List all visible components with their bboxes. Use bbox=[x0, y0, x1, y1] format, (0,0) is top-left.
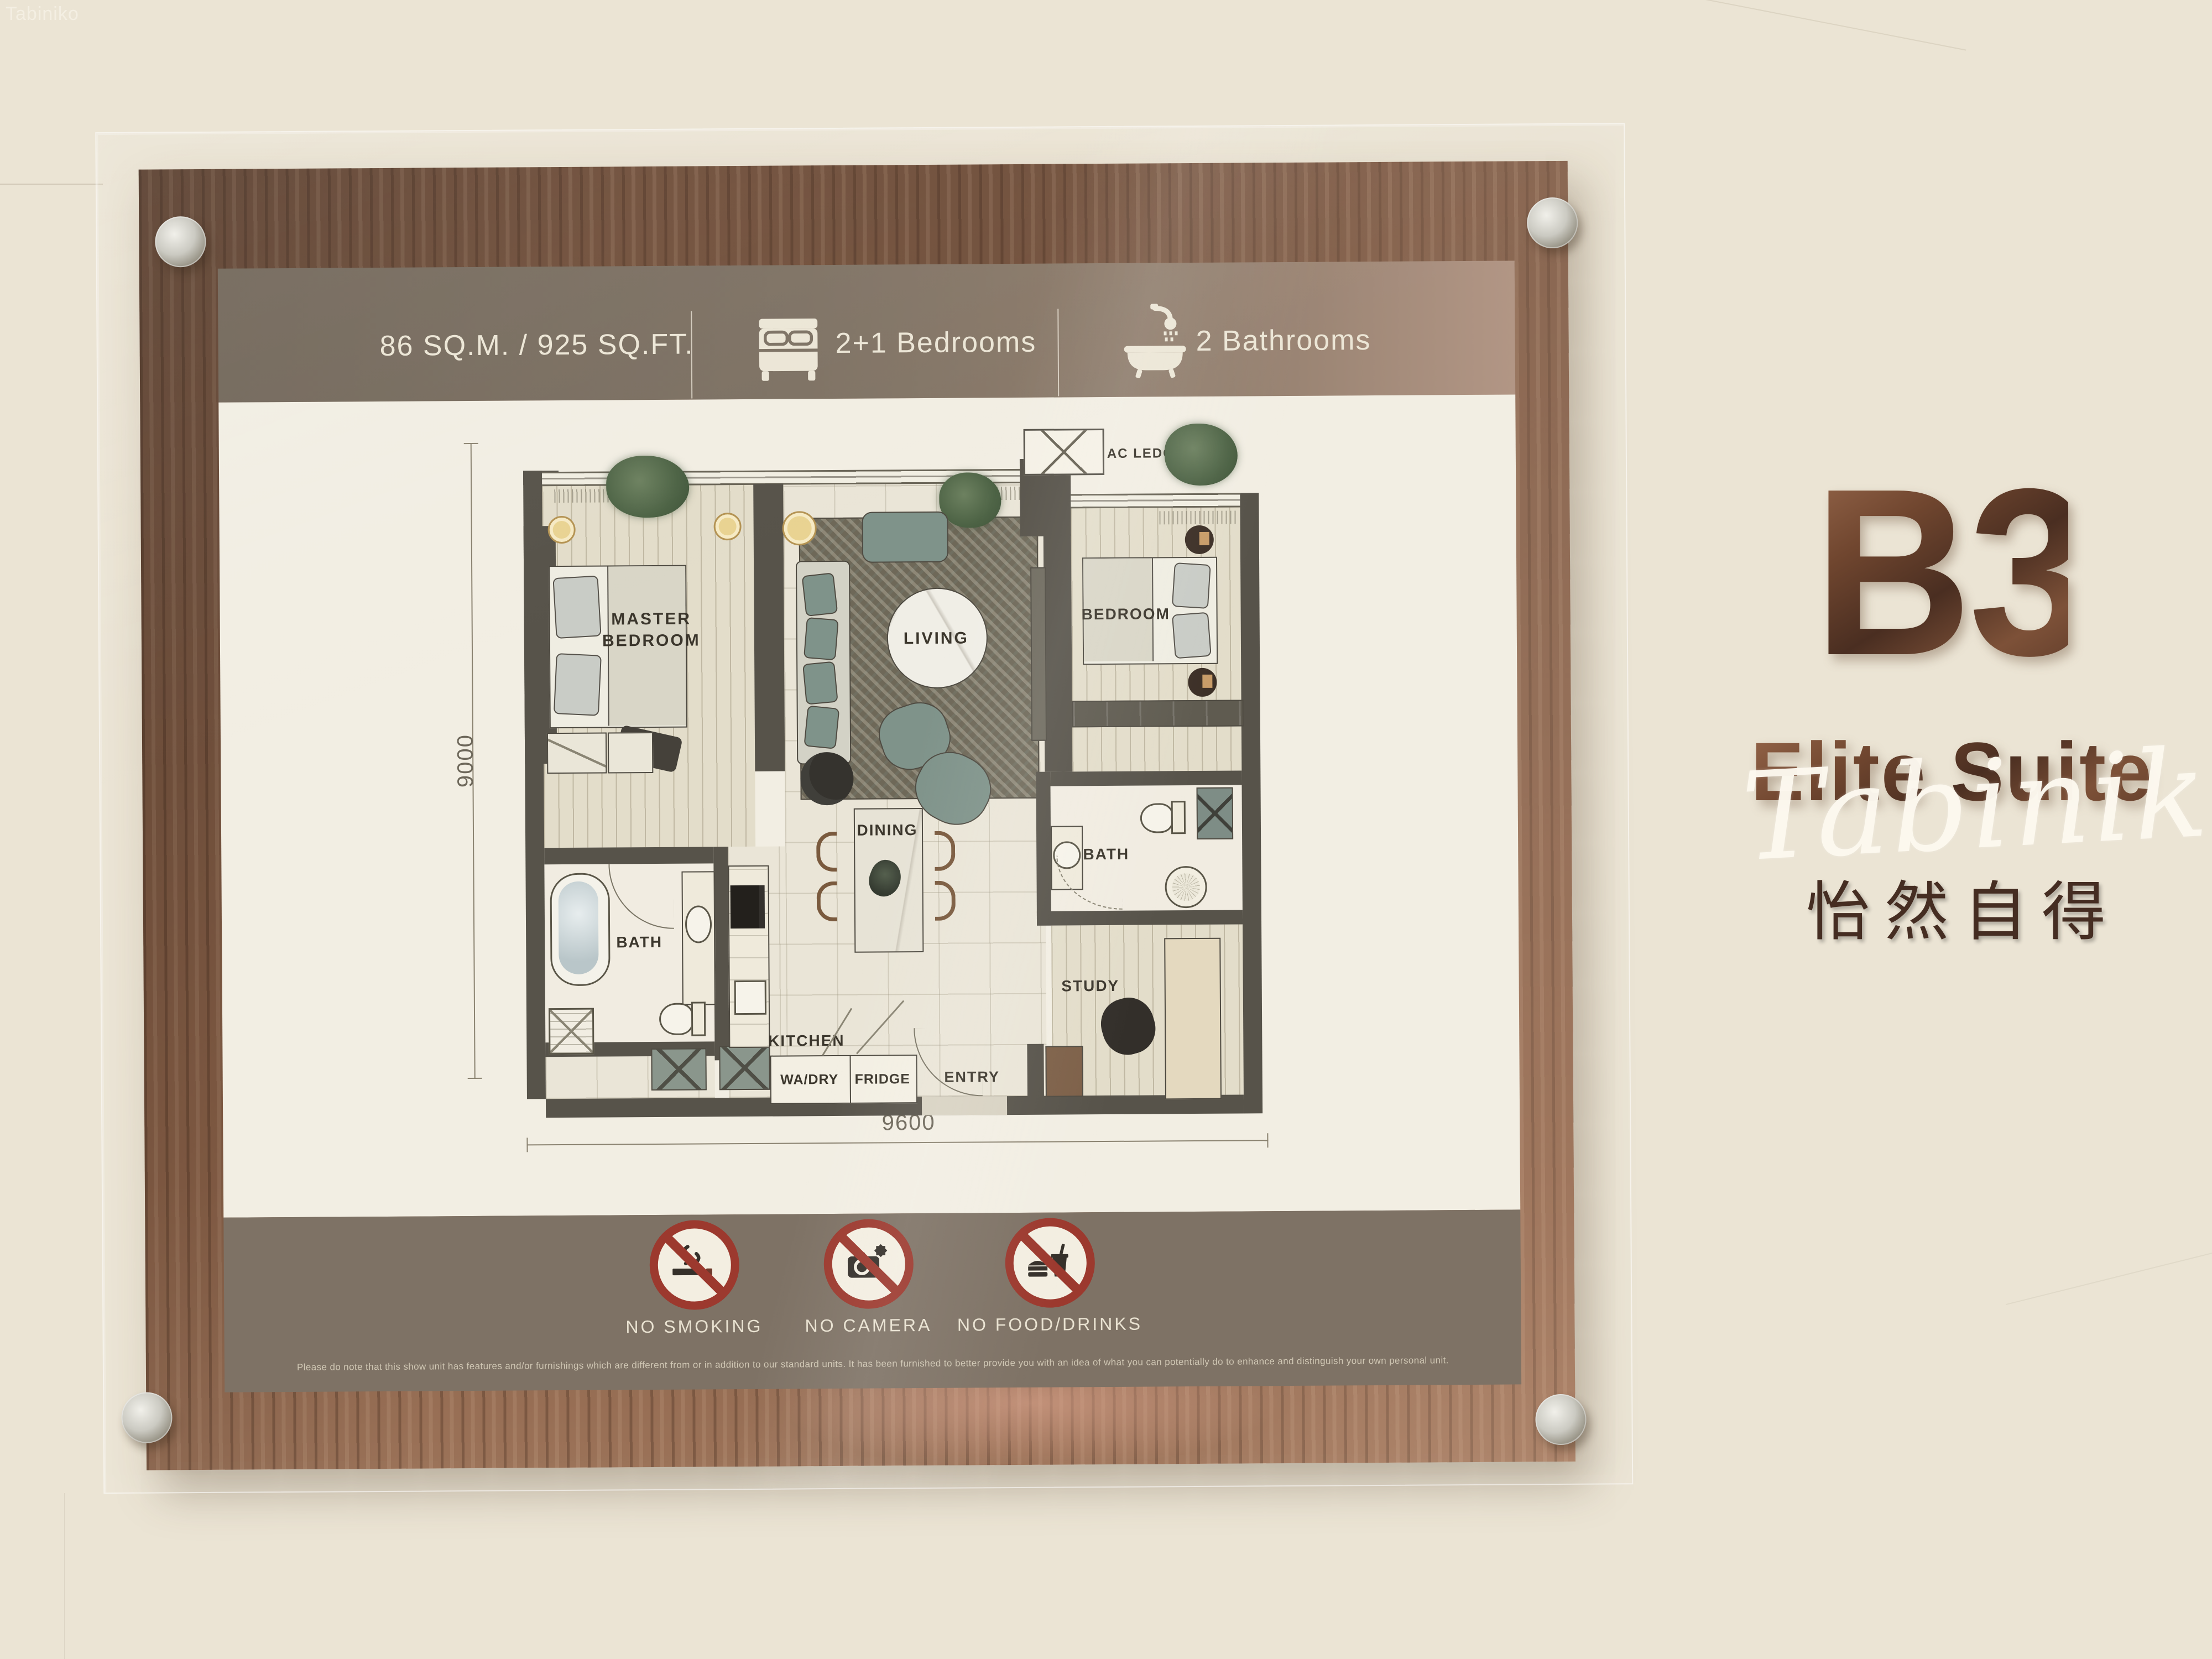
wall-bath2-left bbox=[1036, 772, 1051, 926]
dimension-line-horizontal bbox=[527, 1140, 1268, 1145]
study-label: STUDY bbox=[1052, 976, 1129, 997]
sofa-cushion bbox=[804, 705, 839, 749]
unit-area-text: 86 SQ.M. / 925 SQ.FT. bbox=[379, 328, 645, 363]
sofa bbox=[796, 561, 851, 765]
no-camera-icon bbox=[823, 1219, 914, 1309]
tv-console bbox=[1030, 567, 1047, 741]
plant bbox=[1165, 424, 1238, 486]
dimension-depth: 9000 bbox=[453, 724, 478, 796]
master-bath-label: BATH bbox=[609, 932, 670, 953]
wall-living-bedroom bbox=[1044, 534, 1073, 771]
bedside-table bbox=[1188, 668, 1217, 697]
bed-icon bbox=[750, 314, 827, 387]
round-side-table bbox=[713, 513, 741, 540]
wall-bath-kitchen bbox=[713, 847, 729, 1060]
toilet-tank bbox=[1171, 801, 1186, 834]
no-food-drinks-icon bbox=[1005, 1218, 1095, 1308]
wall-bath2-bottom bbox=[1037, 910, 1243, 925]
wardrobe bbox=[547, 733, 607, 774]
bathtub-basin bbox=[559, 881, 599, 974]
floorplan-sheet: 9000 9600 bbox=[218, 394, 1520, 1217]
bathtub-icon bbox=[1123, 299, 1188, 383]
fridge-label: FRIDGE bbox=[850, 1070, 915, 1088]
standoff-pin bbox=[121, 1392, 173, 1443]
wall-master-living bbox=[753, 484, 785, 771]
poster-header-band: 86 SQ.M. / 925 SQ.FT. bbox=[218, 260, 1515, 402]
pillow bbox=[1172, 612, 1212, 659]
plant bbox=[939, 472, 1001, 528]
standoff-pin bbox=[155, 216, 206, 268]
master-bedroom-label: MASTER BEDROOM bbox=[596, 608, 707, 651]
service-shaft bbox=[719, 1046, 770, 1091]
pillow bbox=[554, 653, 602, 716]
round-side-table bbox=[548, 516, 576, 544]
sink bbox=[685, 905, 712, 943]
bedrooms-text: 2+1 Bedrooms bbox=[835, 326, 1036, 360]
toilet bbox=[659, 1003, 693, 1035]
poster-rules-band: NO SMOKING NO CAMERA bbox=[223, 1209, 1521, 1392]
floorplan-poster: 86 SQ.M. / 925 SQ.FT. bbox=[218, 260, 1521, 1392]
pillow bbox=[552, 576, 601, 639]
toilet-tank bbox=[691, 1001, 706, 1036]
window-band bbox=[1071, 493, 1240, 509]
toilet bbox=[1140, 803, 1173, 833]
bedside-item bbox=[1202, 675, 1212, 688]
no-smoking-label: NO SMOKING bbox=[611, 1316, 777, 1338]
bedside-table bbox=[1185, 525, 1214, 554]
standoff-pin bbox=[1535, 1394, 1587, 1446]
showroom-wall-photo: 86 SQ.M. / 925 SQ.FT. bbox=[0, 0, 2212, 1659]
no-food-drinks-label: NO FOOD/DRINKS bbox=[953, 1314, 1146, 1335]
wardrobe bbox=[608, 732, 653, 773]
washing-machine bbox=[1165, 866, 1207, 908]
curtain-symbol bbox=[1159, 511, 1237, 525]
header-divider bbox=[1057, 309, 1059, 397]
bathrooms-text: 2 Bathrooms bbox=[1196, 324, 1371, 358]
unit-code-sign: B3 bbox=[1814, 453, 2068, 691]
bedside-item bbox=[1199, 532, 1209, 545]
sofa-cushion bbox=[802, 661, 838, 705]
floor-plan-drawing: AC LEDGE bbox=[523, 444, 1268, 1126]
wall-bath2-top bbox=[1050, 770, 1241, 786]
kitchen-sink bbox=[734, 980, 766, 1015]
wardrobe-band bbox=[1072, 700, 1244, 727]
sofa-cushion bbox=[804, 617, 839, 660]
entry-closet bbox=[1045, 1046, 1083, 1097]
desk bbox=[1164, 938, 1222, 1100]
wall bbox=[1240, 493, 1262, 1113]
standoff-pin bbox=[1527, 197, 1578, 249]
living-label: LIVING bbox=[889, 627, 983, 649]
wall-entry-stub bbox=[1027, 1044, 1044, 1097]
no-smoking-icon bbox=[649, 1220, 739, 1310]
corner-watermark: Tabiniko bbox=[6, 3, 79, 25]
shower bbox=[549, 1008, 594, 1055]
cooktop bbox=[731, 885, 765, 928]
side-stool bbox=[800, 752, 854, 806]
dimension-tick bbox=[526, 1138, 528, 1152]
dimension-tick bbox=[468, 1078, 482, 1079]
dimension-tick bbox=[1267, 1133, 1268, 1147]
ac-ledge-box bbox=[1024, 429, 1105, 476]
disclaimer-text: Please do note that this show unit has f… bbox=[258, 1355, 1488, 1374]
no-camera-label: NO CAMERA bbox=[785, 1315, 951, 1337]
wall-bath-top bbox=[544, 847, 713, 864]
kitchen-label: KITCHEN bbox=[768, 1031, 845, 1051]
round-side-table bbox=[782, 511, 816, 545]
bedroom-label: BEDROOM bbox=[1082, 604, 1159, 624]
service-shaft bbox=[651, 1048, 706, 1091]
shower-tray bbox=[1197, 787, 1234, 839]
wood-backing-panel: 86 SQ.M. / 925 SQ.FT. bbox=[139, 161, 1575, 1470]
sofa-cushion bbox=[801, 572, 838, 617]
wa-dry-label: WA/DRY bbox=[770, 1071, 849, 1089]
bathtub bbox=[550, 873, 610, 986]
dining-label: DINING bbox=[855, 820, 919, 841]
plant bbox=[606, 456, 690, 518]
pillow bbox=[1172, 562, 1211, 609]
dimension-tick bbox=[464, 443, 478, 444]
ottoman bbox=[862, 512, 948, 563]
entry-threshold bbox=[922, 1096, 1007, 1115]
script-watermark: Tabiniko bbox=[1739, 731, 2212, 879]
